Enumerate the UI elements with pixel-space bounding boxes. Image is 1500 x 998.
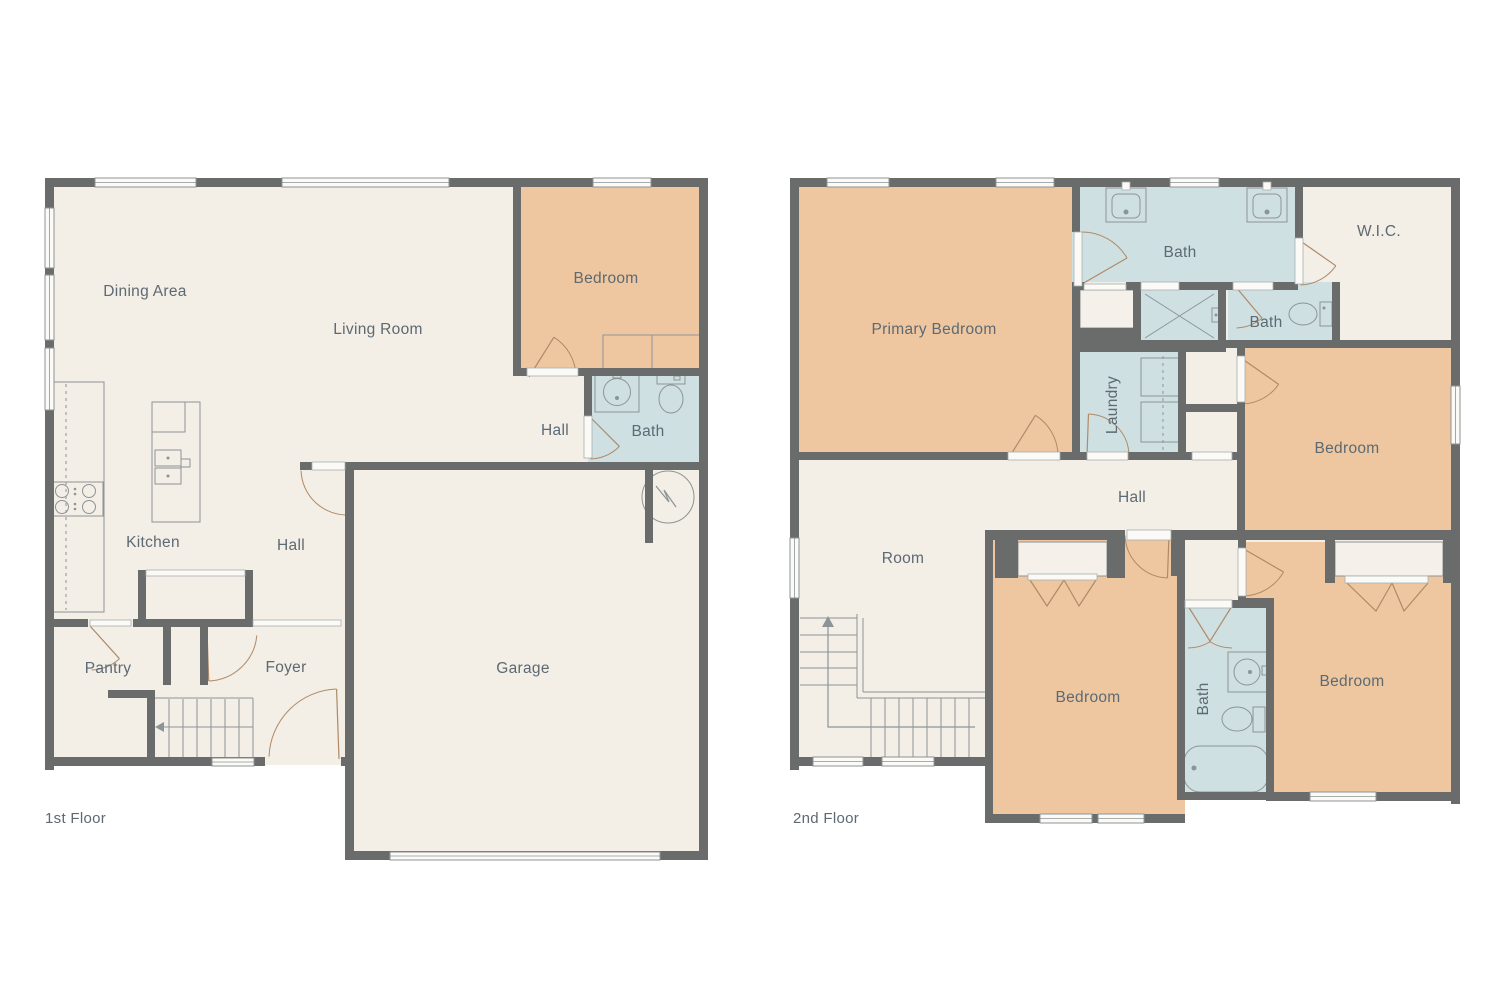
- door-sill: [1263, 182, 1271, 190]
- wall: [1171, 540, 1179, 576]
- fixture-dot: [1323, 307, 1326, 310]
- door-sill: [1141, 282, 1179, 290]
- wall: [45, 619, 88, 627]
- wall: [645, 470, 653, 543]
- door-sill: [1238, 548, 1246, 596]
- room-label: Foyer: [265, 659, 306, 676]
- wall: [1177, 792, 1274, 800]
- room-bedroom: [985, 540, 1185, 814]
- wall: [1178, 348, 1186, 452]
- room-label: Bath: [1163, 244, 1196, 261]
- door-sill: [1127, 530, 1171, 540]
- room-label: Bath: [1249, 314, 1282, 331]
- door-sill: [1345, 576, 1428, 583]
- wall: [108, 690, 155, 698]
- wall: [345, 462, 354, 860]
- wall: [584, 376, 592, 416]
- room-inset: [1080, 290, 1135, 328]
- wall: [1246, 598, 1274, 606]
- door-sill: [253, 620, 341, 626]
- second-floor-plan: Primary BedroomBathW.I.C.BathLaundryBedr…: [790, 178, 1460, 823]
- wall: [1443, 536, 1453, 583]
- wall: [1238, 596, 1246, 606]
- door-sill: [1028, 574, 1097, 580]
- first-floor-plan: Dining AreaLiving RoomBedroomHallBathKit…: [45, 178, 708, 860]
- fixture-dot: [1124, 210, 1129, 215]
- door-sill: [1074, 232, 1082, 286]
- door-sill: [1084, 284, 1126, 290]
- wall: [578, 368, 708, 376]
- wall: [1177, 530, 1460, 540]
- room-bedroom: [1245, 348, 1452, 530]
- room-inset: [1018, 542, 1107, 576]
- door-sill: [312, 462, 345, 470]
- wall: [300, 462, 312, 470]
- room-label: Hall: [277, 537, 305, 554]
- wall: [1218, 290, 1226, 344]
- wall: [133, 619, 253, 627]
- room-inset: [1335, 542, 1443, 576]
- fixture-dot: [615, 396, 619, 400]
- wall: [1186, 404, 1237, 412]
- door-sill: [90, 620, 131, 626]
- fixture-dot: [167, 457, 170, 460]
- wall: [1266, 600, 1274, 800]
- wall: [1179, 282, 1233, 290]
- wall: [163, 627, 171, 685]
- room-label: Bedroom: [574, 270, 639, 287]
- room-label: Primary Bedroom: [871, 321, 996, 338]
- floorplan-canvas: 1st Floor 2nd Floor Dining AreaLiving Ro…: [0, 0, 1500, 998]
- wall: [1325, 536, 1335, 583]
- door-sill: [1087, 452, 1128, 460]
- wall: [1072, 178, 1080, 232]
- room-label: Hall: [1118, 489, 1146, 506]
- fixture-dot: [1192, 766, 1197, 771]
- fixture-dot: [1265, 210, 1270, 215]
- room-label: Living Room: [333, 321, 422, 338]
- wall: [354, 462, 708, 470]
- wall: [699, 178, 708, 860]
- wall: [985, 530, 1125, 540]
- wall: [1273, 282, 1298, 290]
- wall: [1133, 286, 1141, 344]
- wall: [200, 627, 208, 685]
- door-sill: [1237, 356, 1245, 402]
- room-label: Laundry: [1104, 376, 1121, 434]
- wall: [1060, 452, 1072, 460]
- fixture-dot: [1248, 670, 1252, 674]
- wall: [1451, 178, 1460, 804]
- room-label: Bath: [631, 423, 664, 440]
- wall: [790, 178, 799, 770]
- wall: [1295, 178, 1303, 238]
- door-sill: [584, 416, 592, 458]
- room-bedroom: [795, 185, 1072, 452]
- room-label: Bedroom: [1315, 440, 1380, 457]
- wall: [1226, 340, 1455, 348]
- room-label: Bedroom: [1056, 689, 1121, 706]
- room-bath: [1141, 290, 1218, 340]
- door-sill: [146, 570, 245, 576]
- room-label: Bedroom: [1320, 673, 1385, 690]
- door-sill: [527, 368, 578, 376]
- door-sill: [1192, 452, 1232, 460]
- door-sill: [1185, 600, 1232, 608]
- room-label: Pantry: [85, 660, 132, 677]
- wall: [1072, 328, 1134, 352]
- wall: [1332, 282, 1340, 344]
- room-label: Dining Area: [103, 283, 187, 300]
- wall: [1171, 530, 1185, 540]
- wall: [245, 570, 253, 627]
- fixture-dot: [74, 508, 77, 511]
- wall: [1237, 402, 1245, 536]
- door-sill: [1295, 238, 1303, 284]
- wall: [1107, 540, 1125, 578]
- wall: [1238, 540, 1246, 548]
- door-sill: [1008, 452, 1060, 460]
- wall: [985, 530, 993, 822]
- room-bath: [588, 376, 704, 464]
- floorplan-svg: Dining AreaLiving RoomBedroomHallBathKit…: [0, 0, 1500, 998]
- fixture-dot: [74, 503, 77, 506]
- room-label: Bath: [1195, 682, 1212, 715]
- room-label: Hall: [541, 422, 569, 439]
- wall: [1072, 286, 1080, 460]
- door-sill: [1122, 182, 1130, 190]
- room-label: W.I.C.: [1357, 223, 1401, 240]
- fixture-dot: [167, 475, 170, 478]
- wall: [1237, 348, 1245, 356]
- wall: [138, 570, 146, 627]
- fixture-dot: [74, 493, 77, 496]
- room-bath: [1072, 185, 1295, 282]
- wall: [995, 540, 1018, 578]
- wall: [147, 698, 155, 759]
- room-label: Kitchen: [126, 534, 180, 551]
- wall: [1072, 452, 1087, 460]
- door-sill: [1233, 282, 1273, 290]
- wall: [1128, 452, 1186, 460]
- room-label: Room: [882, 550, 925, 567]
- wall: [513, 368, 527, 376]
- room-label: Garage: [496, 660, 550, 677]
- fixture-dot: [1215, 314, 1218, 317]
- wall: [513, 178, 521, 376]
- fixture-dot: [74, 488, 77, 491]
- wall: [790, 452, 1008, 460]
